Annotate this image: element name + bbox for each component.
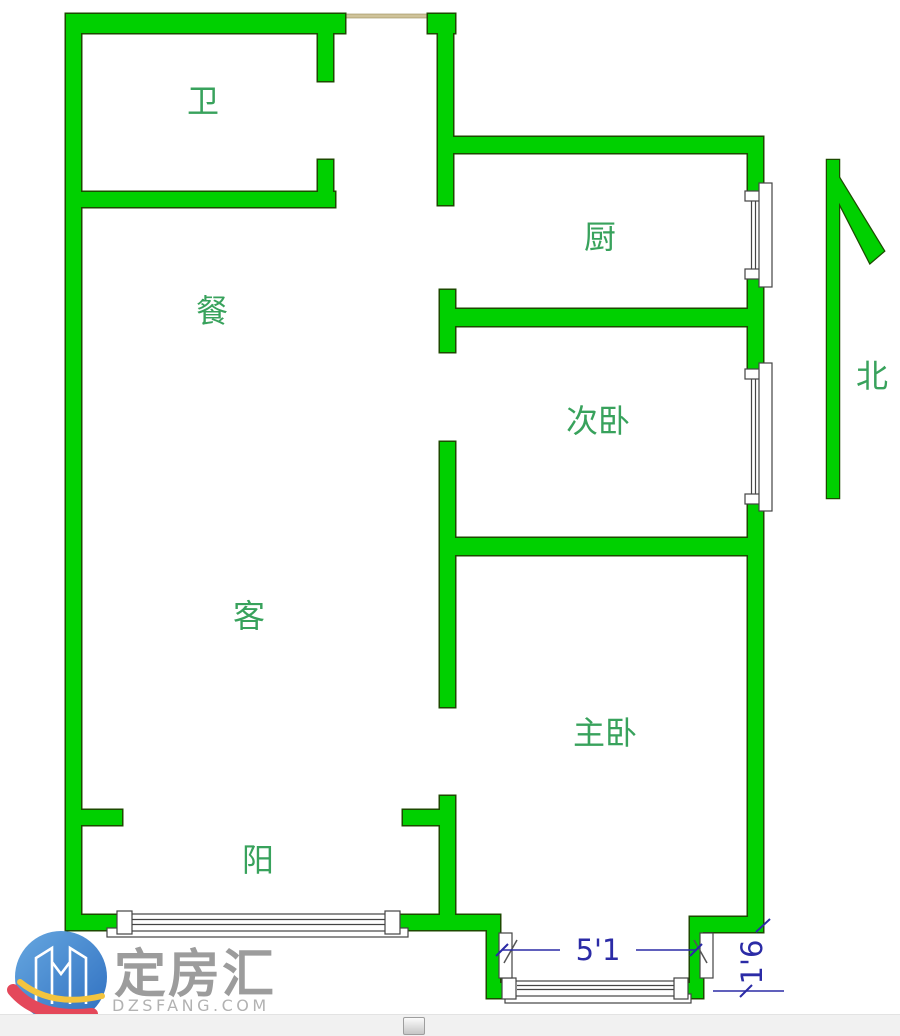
horizontal-scrollbar-track[interactable] — [0, 1014, 900, 1036]
bay-window — [502, 978, 691, 1003]
dimension-label-bay-width: 5'1 — [576, 933, 621, 967]
floor-plan-page: 5'1 1'6 卫 餐 厨 次卧 客 主卧 阳 北 定房汇 DZSFANG.CO… — [0, 0, 900, 1036]
entry-door-line — [345, 14, 429, 18]
room-label-second-bedroom: 次卧 — [566, 402, 630, 440]
room-label-master-bedroom: 主卧 — [573, 714, 637, 752]
watermark-site: DZSFANG.COM — [112, 996, 270, 1014]
room-label-bathroom: 卫 — [187, 82, 219, 120]
room-label-kitchen: 厨 — [584, 218, 616, 256]
dimension-label-bay-depth: 1'6 — [735, 940, 769, 985]
balcony-window — [107, 911, 408, 937]
room-label-dining: 餐 — [196, 292, 228, 330]
second-bedroom-window — [745, 363, 772, 511]
walls-fill — [66, 14, 763, 998]
horizontal-scrollbar-thumb[interactable] — [403, 1017, 425, 1035]
compass-north-label: 北 — [856, 357, 888, 395]
dimension-bay-width: 5'1 — [496, 933, 702, 967]
bay-door-left — [499, 933, 517, 978]
room-label-balcony: 阳 — [242, 841, 274, 879]
room-label-living-room: 客 — [233, 597, 265, 635]
logo — [13, 931, 107, 1014]
kitchen-window — [745, 183, 772, 287]
north-arrow-icon — [827, 160, 884, 498]
floor-plan-canvas: 5'1 1'6 卫 餐 厨 次卧 客 主卧 阳 北 定房汇 DZSFANG.CO… — [0, 0, 900, 1014]
walls-outline — [66, 14, 763, 998]
north-arrow-fill — [827, 160, 884, 498]
